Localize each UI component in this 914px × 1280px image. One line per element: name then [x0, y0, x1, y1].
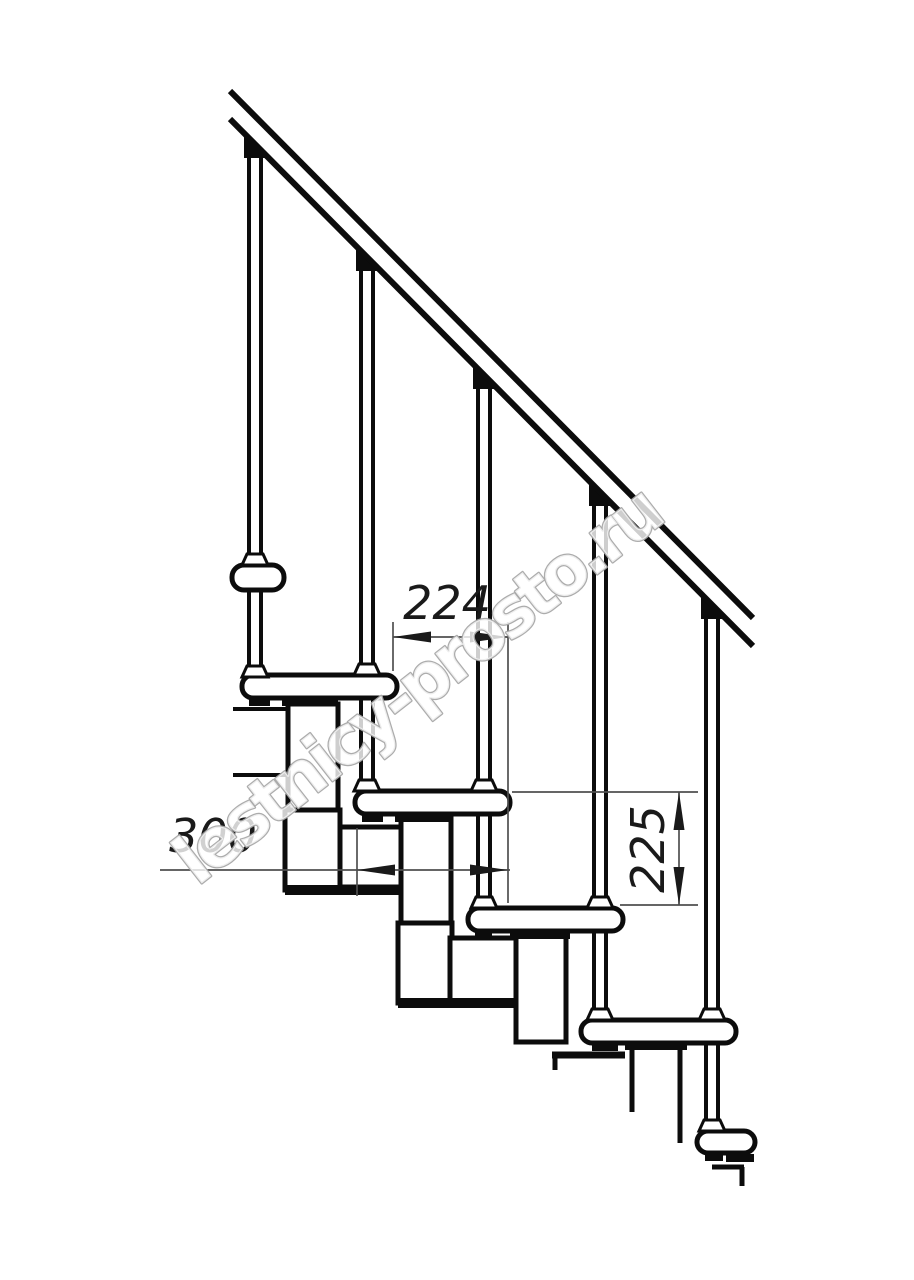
dimension-label-225: 225 — [621, 805, 675, 893]
staircase-drawing: 224 300 225 lestnicy-prosto.ru — [0, 0, 914, 1280]
module-box — [340, 827, 403, 887]
baluster-foot — [699, 1009, 725, 1020]
dimension-arrow-down — [674, 867, 685, 905]
tread-2 — [355, 791, 510, 814]
module-box — [516, 934, 566, 1042]
dimension-arrow-up — [674, 792, 685, 830]
baluster-foot — [587, 1009, 613, 1020]
baluster-foot — [587, 897, 613, 908]
baluster-foot — [471, 897, 497, 908]
baluster-foot — [242, 666, 268, 677]
baluster-foot — [699, 1120, 725, 1131]
module-base-plate — [450, 998, 518, 1008]
module-box — [450, 938, 518, 1003]
module-base-plate — [340, 885, 403, 895]
tread-3 — [468, 908, 623, 931]
baluster-foot — [242, 554, 268, 565]
baluster-5 — [699, 597, 725, 1131]
module-base-plate — [398, 998, 452, 1008]
upper-flight-tread-edge — [232, 565, 284, 590]
baluster-1 — [242, 136, 268, 677]
technical-drawing-canvas: 224 300 225 lestnicy-prosto.ru — [0, 0, 914, 1280]
baluster-foot — [471, 780, 497, 791]
tread-4 — [581, 1020, 736, 1043]
module-base-plate — [285, 885, 340, 895]
bottom-tread-edge — [697, 1131, 755, 1153]
module-box — [398, 923, 452, 1003]
